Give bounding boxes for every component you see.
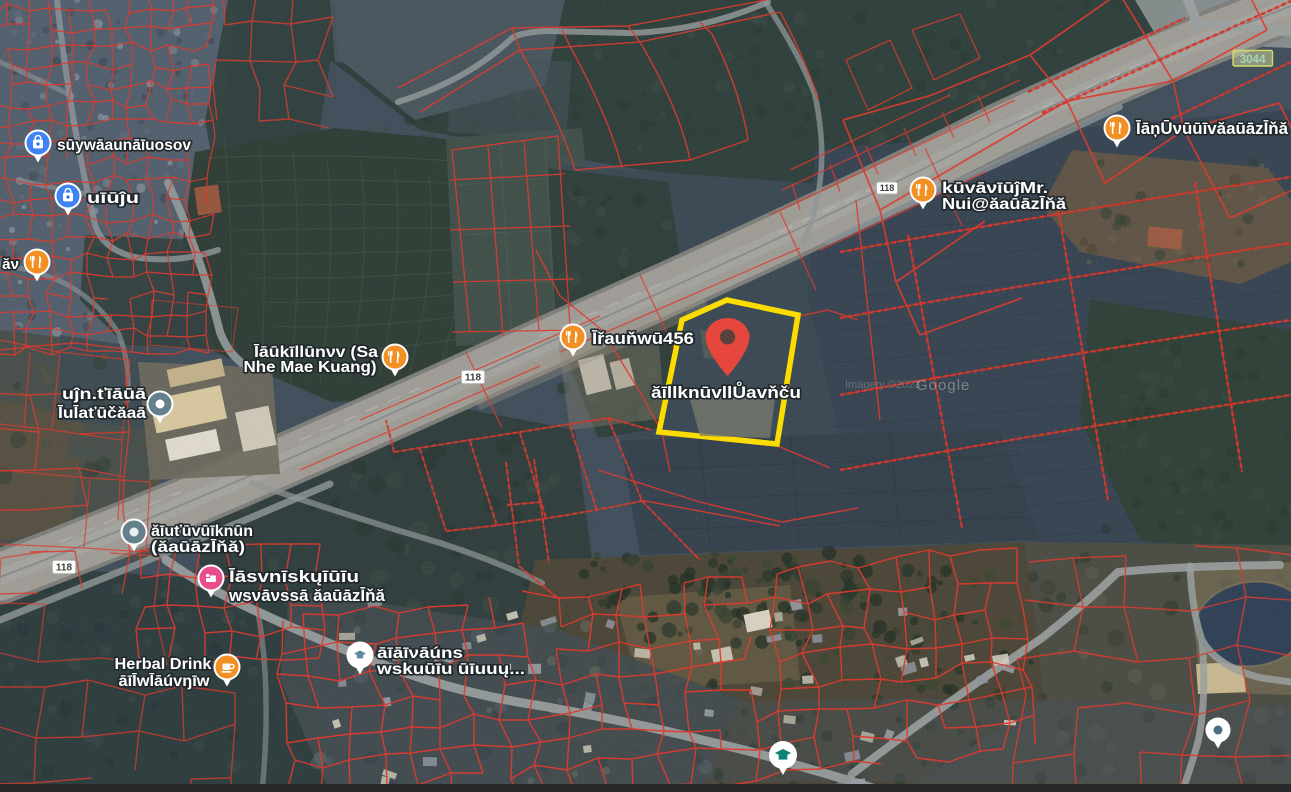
svg-text:3044: 3044 [1240,54,1266,66]
svg-text:kūvāνīūĵMr.: kūvāνīūĵMr. [942,180,1048,197]
svg-text:118: 118 [465,373,482,384]
svg-text:ăν: ăν [2,256,19,273]
svg-text:āīāīνāúns: āīāīνāúns [377,645,463,662]
svg-text:wskuūīu ūīuuų...: wskuūīu ūīuuų... [376,661,525,678]
svg-text:wsνāνssā ăаūāzĪňă: wsνāνssā ăаūāzĪňă [228,586,386,605]
svg-text:118: 118 [880,183,895,193]
svg-text:uīūĵu: uīūĵu [87,190,139,207]
svg-text:Īāsvnīskųīūīu: Īāsvnīskųīūīu [228,567,359,586]
svg-text:ăīllknūvllŮavňču: ăīllknūvllŮavňču [651,382,801,402]
svg-text:Nhe Mae Kuang): Nhe Mae Kuang) [244,359,377,376]
svg-text:āīĪwĪāúvŋīw: āīĪwĪāúvŋīw [119,673,211,690]
svg-text:Nui@ăаūāzĪňă: Nui@ăаūāzĪňă [942,196,1066,213]
svg-text:Imagery ©2023: Imagery ©2023 [845,379,920,391]
svg-text:118: 118 [56,563,73,574]
svg-text:ăīuťūvūīknūn: ăīuťūvūīknūn [151,523,253,540]
svg-text:sūywāaunāīuosov: sūywāaunāīuosov [57,137,191,154]
svg-text:(ăаūāzĪňă): (ăаūāzĪňă) [151,539,245,556]
svg-text:Herbal Drink: Herbal Drink [115,656,212,673]
svg-text:ĪuĪаťūčăаā: ĪuĪаťūčăаā [57,403,146,422]
svg-text:Īřauňwū456: Īřauňwū456 [591,329,694,348]
svg-text:ĪāņŪνūūīvăаūāzĪňă: ĪāņŪνūūīvăаūāzĪňă [1135,119,1289,138]
svg-text:uĵn.ťīāūā: uĵn.ťīāūā [62,386,146,403]
svg-text:Google: Google [916,377,970,394]
